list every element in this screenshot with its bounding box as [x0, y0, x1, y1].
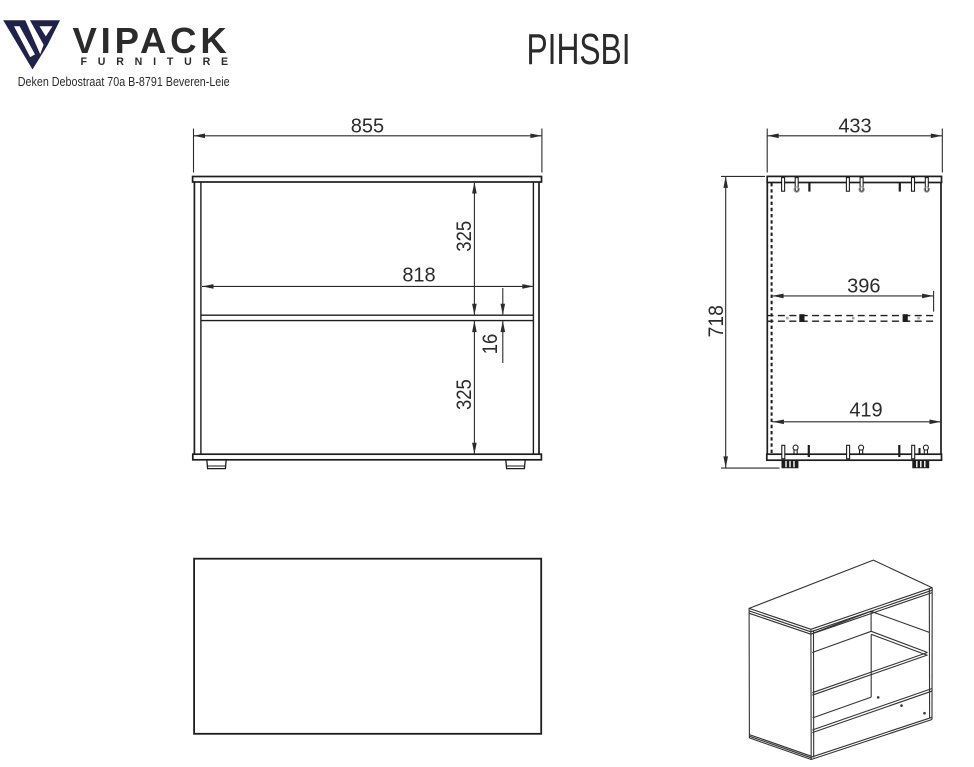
svg-text:396: 396: [847, 276, 880, 298]
svg-text:718: 718: [705, 305, 728, 337]
svg-text:FURNITURE: FURNITURE: [81, 56, 239, 68]
svg-text:855: 855: [351, 116, 384, 138]
svg-text:PIHSBI: PIHSBI: [526, 27, 630, 75]
svg-text:433: 433: [838, 116, 871, 138]
svg-text:419: 419: [849, 400, 882, 422]
svg-text:818: 818: [402, 265, 435, 287]
svg-text:325: 325: [453, 379, 476, 410]
svg-text:16: 16: [479, 334, 502, 355]
svg-text:325: 325: [453, 221, 476, 252]
svg-text:VIPACK: VIPACK: [73, 20, 231, 61]
svg-text:Deken Debostraat 70a B-8791 Be: Deken Debostraat 70a B-8791 Beveren-Leie: [18, 75, 230, 89]
